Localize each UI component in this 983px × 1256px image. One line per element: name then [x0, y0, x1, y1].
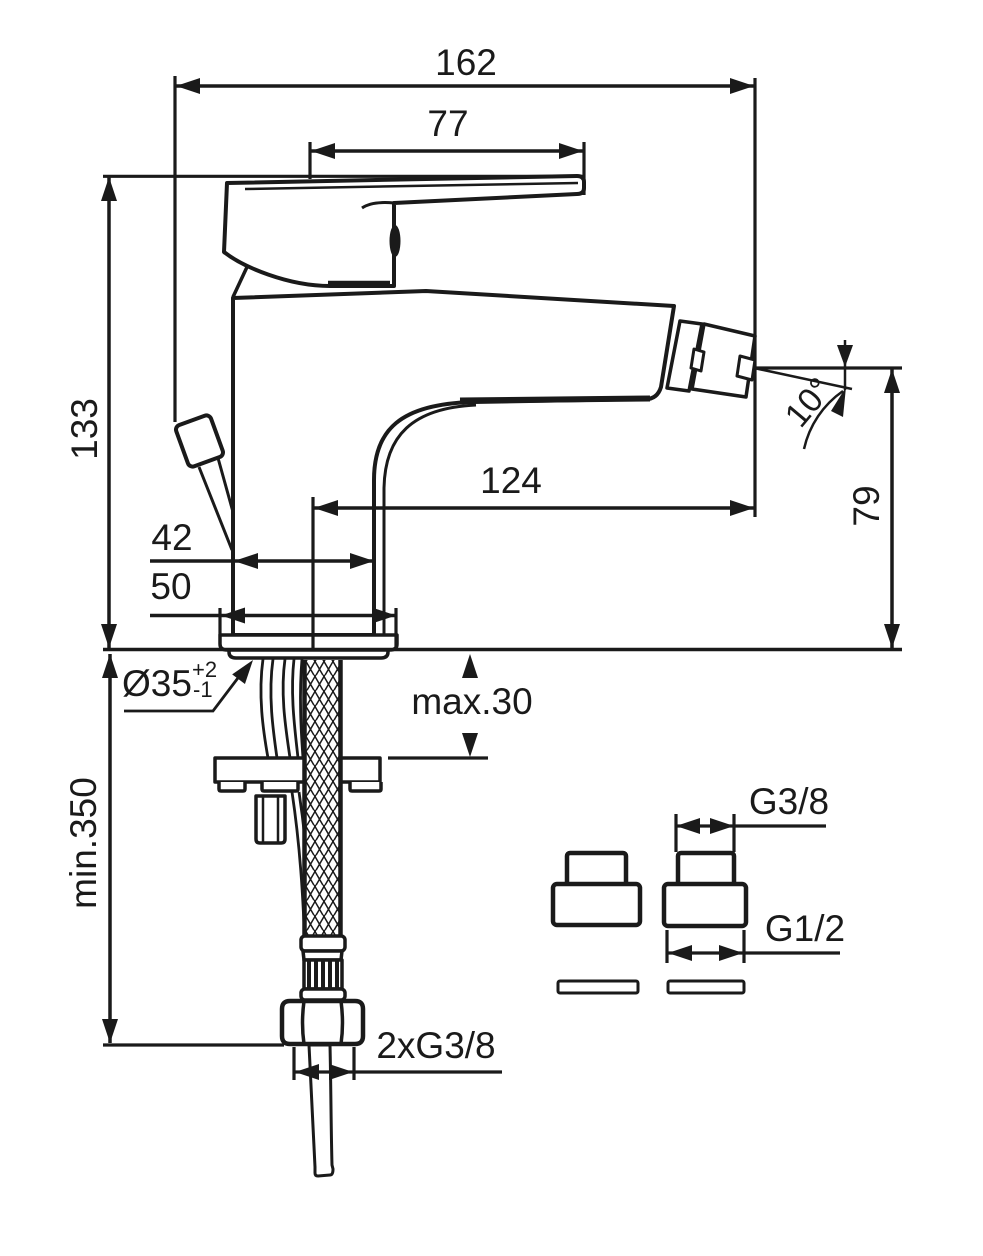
svg-text:133: 133 [64, 398, 105, 460]
svg-text:42: 42 [151, 517, 192, 558]
svg-text:G3/8: G3/8 [749, 781, 829, 822]
svg-text:50: 50 [150, 566, 191, 607]
svg-text:2xG3/8: 2xG3/8 [376, 1025, 495, 1066]
svg-text:124: 124 [480, 460, 542, 501]
svg-text:max.30: max.30 [411, 681, 532, 722]
svg-text:G1/2: G1/2 [765, 908, 845, 949]
svg-text:-1: -1 [193, 677, 213, 702]
svg-text:79: 79 [846, 485, 887, 526]
svg-text:162: 162 [435, 42, 497, 83]
svg-text:77: 77 [427, 103, 468, 144]
svg-text:min.350: min.350 [63, 777, 104, 909]
svg-text:Ø35: Ø35 [122, 663, 192, 704]
